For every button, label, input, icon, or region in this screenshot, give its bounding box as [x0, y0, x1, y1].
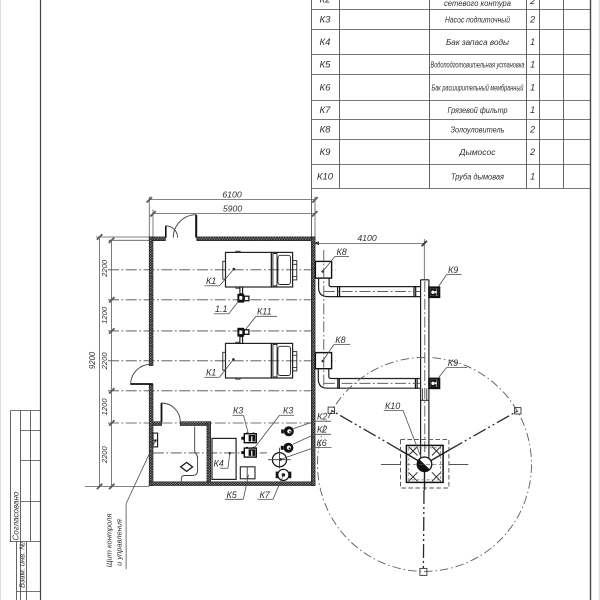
- svg-text:1: 1: [530, 105, 535, 115]
- svg-text:1: 1: [530, 82, 535, 92]
- svg-text:Щит контроля: Щит контроля: [105, 514, 114, 568]
- svg-text:2200: 2200: [100, 352, 109, 371]
- svg-text:Грязевой фильтр: Грязевой фильтр: [448, 106, 508, 115]
- svg-text:К7: К7: [260, 490, 271, 500]
- svg-text:К2: К2: [317, 425, 327, 435]
- svg-text:К9: К9: [448, 265, 458, 275]
- svg-text:Насос подпиточный: Насос подпиточный: [445, 15, 510, 24]
- svg-text:К8: К8: [337, 247, 347, 257]
- svg-text:К5: К5: [227, 490, 238, 500]
- svg-text:К8: К8: [335, 335, 345, 345]
- svg-text:6100: 6100: [222, 190, 241, 200]
- svg-text:9200: 9200: [88, 351, 97, 369]
- svg-text:К6: К6: [320, 82, 332, 93]
- svg-text:Дымосос: Дымосос: [458, 148, 495, 157]
- svg-text:2: 2: [529, 125, 535, 135]
- svg-text:сетевого контура: сетевого контура: [444, 0, 512, 8]
- svg-text:К4: К4: [214, 459, 224, 469]
- svg-text:2: 2: [529, 147, 535, 157]
- svg-text:К10: К10: [385, 401, 400, 411]
- svg-text:Бак расширительный мембранный: Бак расширительный мембранный: [432, 83, 524, 92]
- svg-text:Согласовано: Согласовано: [11, 491, 20, 540]
- svg-text:К2: К2: [320, 0, 332, 6]
- svg-text:К4: К4: [320, 37, 331, 48]
- svg-text:1: 1: [530, 171, 535, 181]
- svg-text:К1: К1: [206, 276, 216, 286]
- svg-text:К9: К9: [320, 147, 332, 158]
- svg-text:К3: К3: [320, 14, 332, 25]
- svg-text:2: 2: [529, 0, 535, 6]
- svg-text:1200: 1200: [100, 398, 109, 416]
- svg-text:К7: К7: [320, 105, 332, 116]
- svg-text:К10: К10: [317, 171, 334, 182]
- svg-text:К9: К9: [448, 358, 458, 368]
- svg-text:К6: К6: [317, 438, 327, 448]
- svg-text:Водоподготовительная установка: Водоподготовительная установка: [431, 61, 525, 70]
- svg-text:Бак запаса воды: Бак запаса воды: [446, 38, 509, 47]
- svg-text:1: 1: [530, 37, 535, 47]
- svg-text:1.1: 1.1: [215, 304, 228, 314]
- svg-text:Труба дымовая: Труба дымовая: [451, 172, 505, 181]
- svg-text:1: 1: [530, 60, 535, 70]
- svg-text:5900: 5900: [223, 204, 242, 214]
- svg-text:К3: К3: [233, 406, 243, 416]
- svg-text:Взам. инв. №: Взам. инв. №: [18, 542, 27, 588]
- svg-text:К1: К1: [206, 368, 216, 378]
- svg-text:К2: К2: [317, 412, 327, 422]
- svg-text:и управления: и управления: [115, 519, 124, 566]
- svg-text:2200: 2200: [100, 445, 109, 464]
- svg-text:4100: 4100: [357, 233, 376, 243]
- svg-text:1200: 1200: [100, 306, 109, 324]
- svg-text:2200: 2200: [100, 259, 109, 278]
- svg-text:К5: К5: [320, 60, 332, 71]
- svg-text:К11: К11: [257, 307, 272, 317]
- svg-text:К3: К3: [283, 406, 293, 416]
- svg-text:К8: К8: [320, 125, 332, 136]
- svg-text:2: 2: [529, 14, 535, 24]
- svg-text:Золоуловитель: Золоуловитель: [451, 126, 505, 135]
